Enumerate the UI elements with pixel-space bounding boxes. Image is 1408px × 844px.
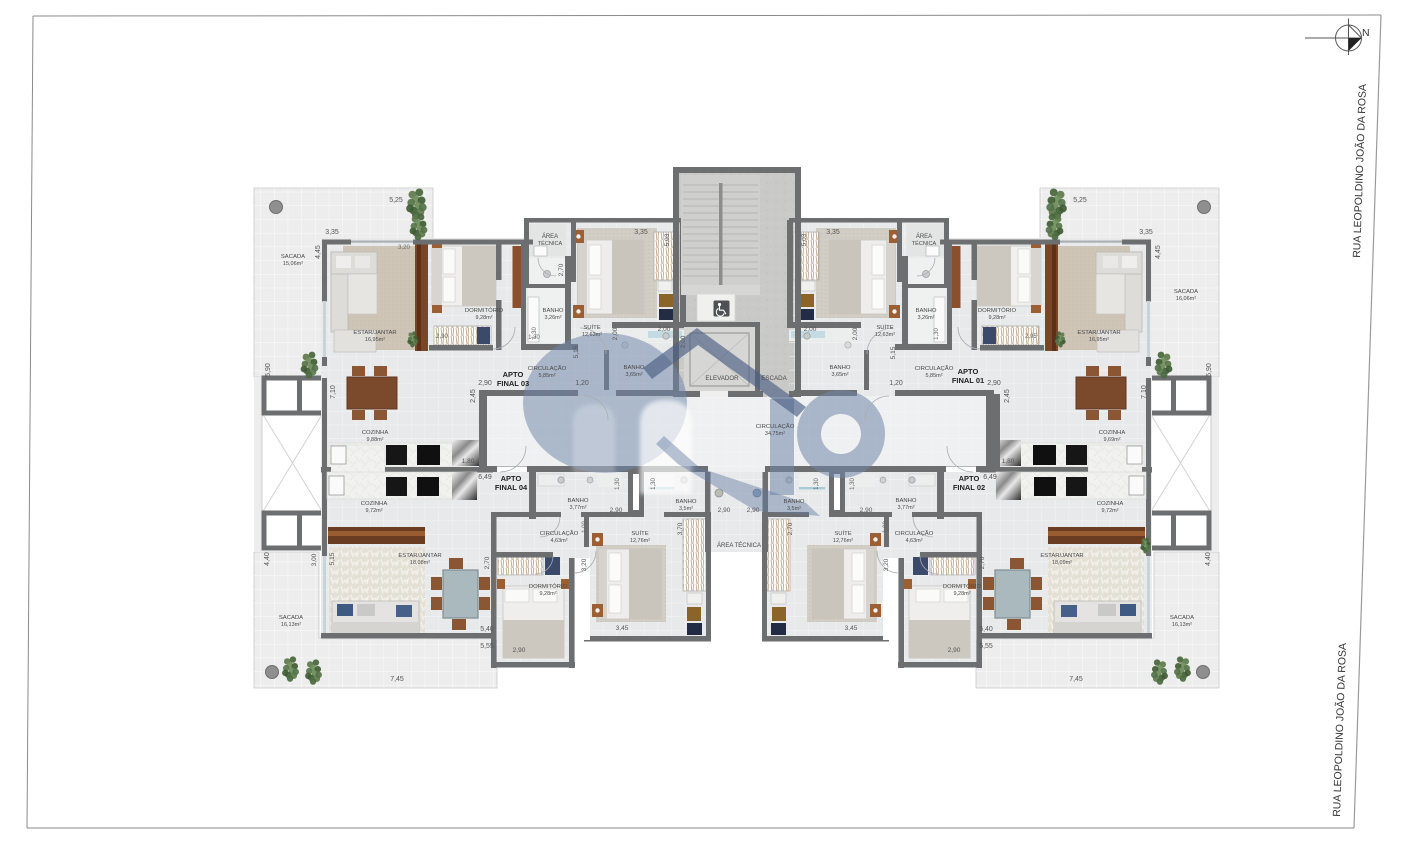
svg-text:9,28m²: 9,28m² [539,591,556,597]
svg-text:ESTAR/JANTAR: ESTAR/JANTAR [398,553,441,559]
svg-text:3,35: 3,35 [325,229,339,236]
svg-text:15,06m²: 15,06m² [283,261,303,267]
svg-text:1,80: 1,80 [462,458,475,465]
svg-text:1,30: 1,30 [934,328,940,340]
svg-text:1,30: 1,30 [651,478,657,490]
svg-text:BANHO: BANHO [916,308,937,314]
svg-text:7,10: 7,10 [1141,385,1148,399]
svg-text:2,70: 2,70 [787,522,794,535]
svg-text:ESTAR/JANTAR: ESTAR/JANTAR [1040,553,1083,559]
svg-text:9,28m²: 9,28m² [953,591,970,597]
svg-text:3,45: 3,45 [845,625,858,632]
svg-text:4,40: 4,40 [264,552,271,566]
svg-text:CIRCULAÇÃO: CIRCULAÇÃO [756,423,795,430]
svg-text:BANHO: BANHO [624,365,645,371]
svg-text:BANHO: BANHO [784,499,805,505]
svg-text:2,90: 2,90 [513,647,526,654]
svg-text:3,45: 3,45 [616,625,629,632]
svg-text:5,03: 5,03 [664,233,671,246]
svg-text:2,00: 2,00 [680,335,687,348]
svg-text:CIRCULAÇÃO: CIRCULAÇÃO [528,365,567,372]
svg-text:3,77m²: 3,77m² [569,505,586,511]
svg-text:1,80: 1,80 [1002,458,1015,465]
svg-text:COZINHA: COZINHA [361,501,388,507]
svg-text:7,10: 7,10 [330,385,337,399]
svg-text:BANHO: BANHO [543,308,564,314]
svg-text:2,45: 2,45 [1004,389,1011,403]
svg-text:3,77m²: 3,77m² [897,505,914,511]
svg-text:5,25: 5,25 [1073,197,1087,204]
svg-text:FINAL 02: FINAL 02 [953,483,985,492]
svg-text:SUÍTE: SUÍTE [631,530,648,537]
svg-text:APTO: APTO [959,474,980,483]
svg-text:4,45: 4,45 [1155,245,1162,259]
svg-text:2,90: 2,90 [436,334,448,340]
svg-text:16,95m²: 16,95m² [365,337,385,343]
svg-text:BANHO: BANHO [896,498,917,504]
svg-text:1,00: 1,00 [883,521,889,533]
svg-text:6,49: 6,49 [478,474,492,481]
svg-text:5,55: 5,55 [979,643,993,650]
svg-text:5,15: 5,15 [329,552,336,565]
svg-text:16,95m²: 16,95m² [1089,337,1109,343]
svg-text:12,63m²: 12,63m² [582,332,602,338]
svg-text:ESTAR/JANTAR: ESTAR/JANTAR [1077,330,1120,336]
svg-text:FINAL 01: FINAL 01 [952,376,984,385]
svg-text:3,65m²: 3,65m² [625,372,642,378]
svg-text:2,70: 2,70 [979,556,986,569]
svg-text:5,85m²: 5,85m² [538,373,555,379]
svg-text:SACADA: SACADA [281,254,305,260]
svg-text:16,13m²: 16,13m² [1172,622,1192,628]
svg-text:5,25: 5,25 [389,197,403,204]
svg-text:CIRCULAÇÃO: CIRCULAÇÃO [540,530,579,537]
svg-text:3,5m²: 3,5m² [679,506,693,512]
svg-text:DORMITÓRIO: DORMITÓRIO [943,583,982,590]
svg-text:2,90: 2,90 [987,380,1001,387]
svg-text:9,28m²: 9,28m² [988,315,1005,321]
svg-text:SUÍTE: SUÍTE [583,324,600,331]
svg-text:2,95: 2,95 [1025,334,1037,340]
svg-text:12,76m²: 12,76m² [833,538,853,544]
svg-text:DORMITÓRIO: DORMITÓRIO [529,583,568,590]
svg-text:3,20: 3,20 [883,558,890,571]
svg-text:BANHO: BANHO [830,365,851,371]
svg-text:3,26m²: 3,26m² [917,315,934,321]
svg-text:3,65m²: 3,65m² [831,372,848,378]
svg-text:2,90: 2,90 [860,507,873,514]
svg-text:5,03: 5,03 [801,233,808,246]
svg-text:4,63m²: 4,63m² [550,538,567,544]
svg-text:1,30: 1,30 [850,478,856,490]
svg-text:5,90: 5,90 [1206,363,1213,377]
svg-text:2,90: 2,90 [948,647,961,654]
svg-text:3,26m²: 3,26m² [544,315,561,321]
svg-text:1,30: 1,30 [615,478,621,490]
svg-text:6,49: 6,49 [983,474,997,481]
svg-text:5,90: 5,90 [265,363,272,377]
svg-text:BANHO: BANHO [676,499,697,505]
svg-text:APTO: APTO [501,474,522,483]
svg-text:3,20: 3,20 [581,558,588,571]
svg-text:9,72m²: 9,72m² [1101,508,1118,514]
svg-text:COZINHA: COZINHA [1099,430,1126,436]
svg-text:16,06m²: 16,06m² [1176,296,1196,302]
svg-text:3,70: 3,70 [677,522,684,535]
svg-text:2,45: 2,45 [470,389,477,403]
svg-text:N: N [1362,27,1370,39]
svg-text:TÉCNICA: TÉCNICA [912,240,937,247]
svg-text:TÉCNICA: TÉCNICA [538,240,563,247]
svg-text:7,45: 7,45 [390,676,404,683]
svg-text:2,90: 2,90 [610,507,623,514]
svg-text:3,35: 3,35 [634,229,648,236]
svg-text:SUÍTE: SUÍTE [876,324,893,331]
svg-text:5,40: 5,40 [480,626,494,633]
svg-text:COZINHA: COZINHA [362,430,389,436]
svg-text:3,00: 3,00 [311,553,318,566]
svg-text:2,00: 2,00 [852,327,859,340]
svg-text:3,5m²: 3,5m² [787,506,801,512]
svg-text:18,08m²: 18,08m² [410,560,430,566]
svg-text:1,20: 1,20 [575,380,589,387]
svg-text:2,00: 2,00 [612,327,619,340]
svg-text:ELEVADOR: ELEVADOR [705,375,739,382]
svg-text:ESCADA: ESCADA [761,375,787,382]
svg-text:2,70: 2,70 [484,556,491,569]
svg-text:34,75m²: 34,75m² [765,431,785,437]
svg-text:SUÍTE: SUÍTE [834,530,851,537]
svg-text:2,00: 2,00 [658,326,671,333]
svg-text:APTO: APTO [958,367,979,376]
svg-text:1,20: 1,20 [889,380,903,387]
svg-text:5,15: 5,15 [890,346,897,359]
svg-text:12,76m²: 12,76m² [630,538,650,544]
svg-text:2,90: 2,90 [718,507,731,514]
svg-text:5,40: 5,40 [979,626,993,633]
svg-text:5,15: 5,15 [573,345,580,358]
svg-text:2,90: 2,90 [747,507,760,514]
svg-text:BANHO: BANHO [568,498,589,504]
svg-text:DORMITÓRIO: DORMITÓRIO [978,307,1017,314]
svg-text:2,90: 2,90 [478,380,492,387]
svg-text:4,45: 4,45 [315,245,322,259]
svg-text:SACADA: SACADA [1170,615,1194,621]
svg-text:SACADA: SACADA [1174,289,1198,295]
svg-text:9,88m²: 9,88m² [366,437,383,443]
svg-text:4,63m²: 4,63m² [905,538,922,544]
svg-text:3,35: 3,35 [1139,229,1153,236]
svg-text:5,55: 5,55 [480,643,494,650]
svg-text:3,35: 3,35 [826,229,840,236]
svg-text:CIRCULAÇÃO: CIRCULAÇÃO [915,365,954,372]
svg-text:ESTAR/JANTAR: ESTAR/JANTAR [353,330,396,336]
svg-text:FINAL 04: FINAL 04 [495,483,528,492]
svg-text:5,85m²: 5,85m² [925,373,942,379]
svg-text:FINAL 03: FINAL 03 [497,379,529,388]
svg-text:2,00: 2,00 [804,326,817,333]
svg-text:7,45: 7,45 [1069,676,1083,683]
svg-text:1,00: 1,00 [582,521,588,533]
svg-text:ÁREA: ÁREA [916,233,932,240]
svg-text:2,70: 2,70 [558,263,565,276]
svg-text:ÁREA TÉCNICA: ÁREA TÉCNICA [717,542,761,549]
svg-text:1,30: 1,30 [814,478,820,490]
svg-text:COZINHA: COZINHA [1097,501,1124,507]
svg-text:12,63m²: 12,63m² [875,332,895,338]
svg-text:9,72m²: 9,72m² [365,508,382,514]
svg-text:3,20: 3,20 [398,245,410,251]
svg-text:4,40: 4,40 [1205,552,1212,566]
svg-text:1,30: 1,30 [532,327,538,339]
svg-text:16,13m²: 16,13m² [281,622,301,628]
svg-text:DORMITÓRIO: DORMITÓRIO [465,307,504,314]
svg-text:APTO: APTO [503,370,524,379]
svg-text:CIRCULAÇÃO: CIRCULAÇÃO [895,530,934,537]
svg-text:9,28m²: 9,28m² [475,315,492,321]
svg-text:18,09m²: 18,09m² [1052,560,1072,566]
svg-text:ÁREA: ÁREA [542,233,558,240]
svg-text:9,69m²: 9,69m² [1103,437,1120,443]
svg-text:SACADA: SACADA [279,615,303,621]
